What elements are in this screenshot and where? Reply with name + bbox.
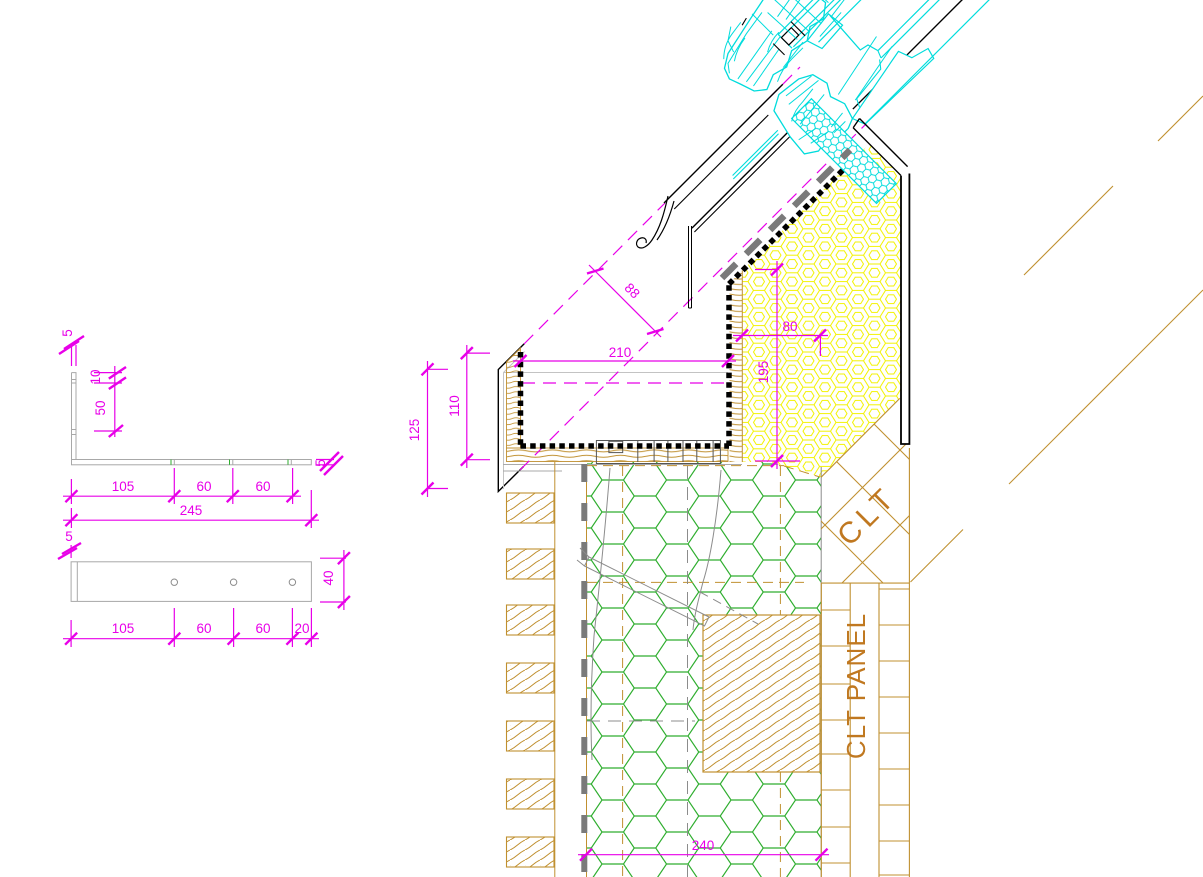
svg-text:5: 5 [60, 329, 75, 337]
svg-text:40: 40 [321, 570, 336, 585]
svg-text:210: 210 [609, 345, 632, 360]
svg-text:105: 105 [112, 621, 135, 636]
svg-text:10: 10 [88, 369, 103, 384]
svg-text:50: 50 [93, 400, 108, 415]
svg-text:20: 20 [294, 621, 309, 636]
svg-text:125: 125 [407, 419, 422, 442]
svg-text:245: 245 [180, 503, 203, 518]
svg-text:60: 60 [196, 479, 211, 494]
svg-text:195: 195 [756, 361, 771, 384]
svg-text:60: 60 [196, 621, 211, 636]
svg-text:60: 60 [255, 621, 270, 636]
svg-text:110: 110 [447, 395, 462, 417]
svg-text:5: 5 [313, 459, 328, 467]
svg-text:CLT PANEL: CLT PANEL [841, 613, 871, 759]
svg-text:105: 105 [112, 479, 135, 494]
svg-text:60: 60 [255, 479, 270, 494]
svg-text:5: 5 [65, 529, 73, 544]
svg-text:80: 80 [782, 319, 797, 334]
svg-text:240: 240 [692, 838, 715, 853]
